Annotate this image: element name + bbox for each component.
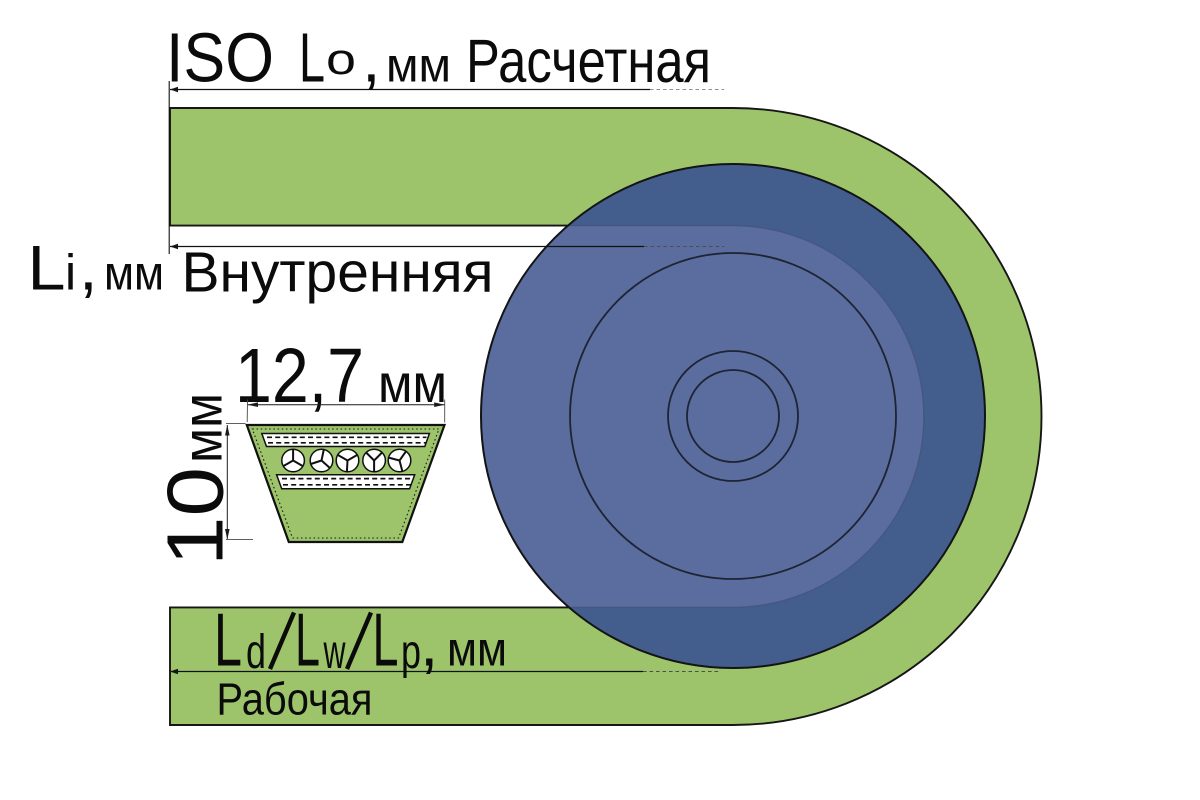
svg-text:o: o: [326, 35, 356, 84]
svg-text:10: 10: [151, 467, 240, 566]
svg-text:,: ,: [79, 230, 98, 305]
svg-text:,: ,: [362, 22, 381, 97]
svg-text:L: L: [373, 597, 399, 681]
svg-text:p: p: [401, 626, 421, 679]
svg-text:мм: мм: [104, 248, 164, 301]
svg-text:мм: мм: [447, 623, 507, 676]
svg-text:L: L: [299, 19, 325, 97]
svg-text:i: i: [65, 245, 76, 301]
svg-text:,: ,: [420, 605, 438, 679]
svg-text:мм: мм: [171, 393, 234, 463]
svg-text:L: L: [28, 234, 66, 304]
svg-text:ISO: ISO: [166, 19, 274, 97]
svg-text:Рабочая: Рабочая: [217, 673, 373, 724]
svg-text:L: L: [295, 597, 320, 681]
svg-text:Внутренняя: Внутренняя: [182, 241, 494, 305]
svg-text:Расчетная: Расчетная: [466, 27, 711, 95]
svg-text:мм: мм: [386, 40, 451, 93]
svg-text:d: d: [246, 626, 266, 679]
svg-text:L: L: [214, 597, 242, 681]
svg-text:w: w: [323, 626, 346, 679]
